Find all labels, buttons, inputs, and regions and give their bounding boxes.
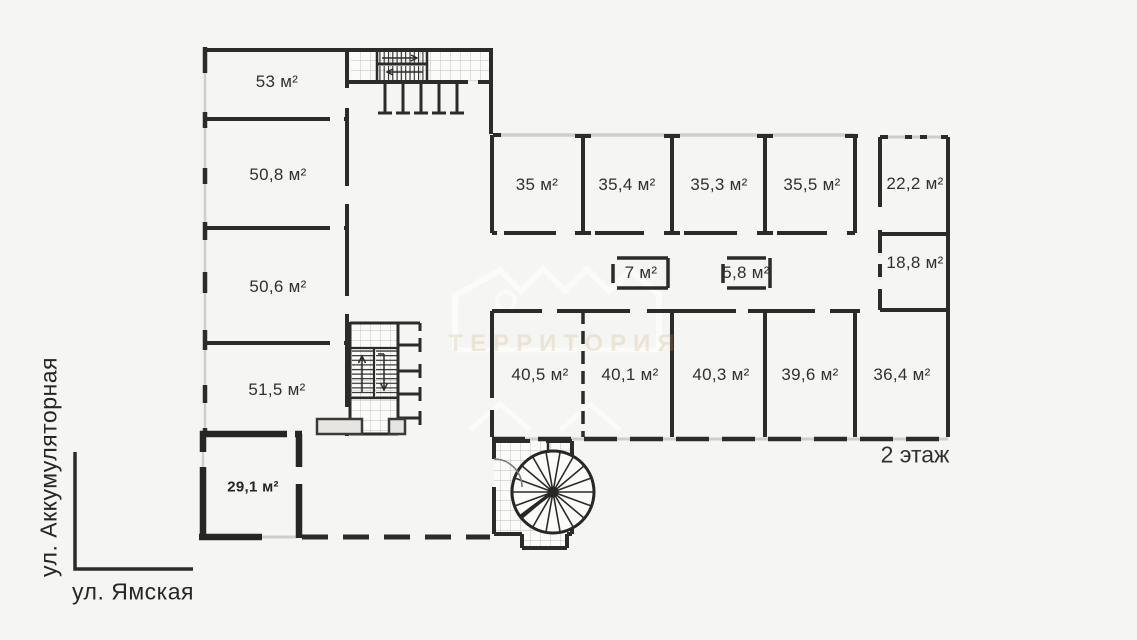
room-area-label: 35 м² (516, 175, 558, 195)
room-area-label: 35,4 м² (598, 175, 655, 195)
stair-landing-small (389, 419, 405, 434)
room-area-label: 18,8 м² (886, 253, 943, 273)
room-area-label: 40,5 м² (511, 365, 568, 385)
room-area-label: 51,5 м² (248, 380, 305, 400)
room-area-label: 5,8 м² (722, 263, 770, 283)
room-area-label: 22,2 м² (886, 174, 943, 194)
room-area-label: 40,3 м² (692, 365, 749, 385)
watermark-text: ТЕРРИТОРИЯ (448, 330, 681, 358)
floor-label: 2 этаж (881, 442, 950, 469)
floor-plan-page: ТЕРРИТОРИЯ 53 м² 50,8 м² 50,6 м² 51,5 м²… (0, 0, 1137, 640)
room-area-label: 29,1 м² (227, 479, 279, 496)
room-area-label: 35,3 м² (690, 175, 747, 195)
staircase-top (377, 51, 427, 81)
stair-landing-large (317, 419, 362, 434)
room-area-label: 53 м² (256, 72, 298, 92)
room-area-label: 50,8 м² (249, 165, 306, 185)
room-area-label: 36,4 м² (873, 365, 930, 385)
room-area-label: 39,6 м² (781, 365, 838, 385)
room-area-label: 40,1 м² (601, 365, 658, 385)
street-label-horizontal: ул. Ямская (72, 579, 194, 606)
room-area-label: 35,5 м² (783, 175, 840, 195)
room-area-label: 7 м² (625, 263, 658, 283)
room-area-label: 50,6 м² (249, 277, 306, 297)
floor-plan-drawing (0, 0, 1137, 640)
street-label-vertical: ул. Аккумуляторная (36, 357, 63, 577)
